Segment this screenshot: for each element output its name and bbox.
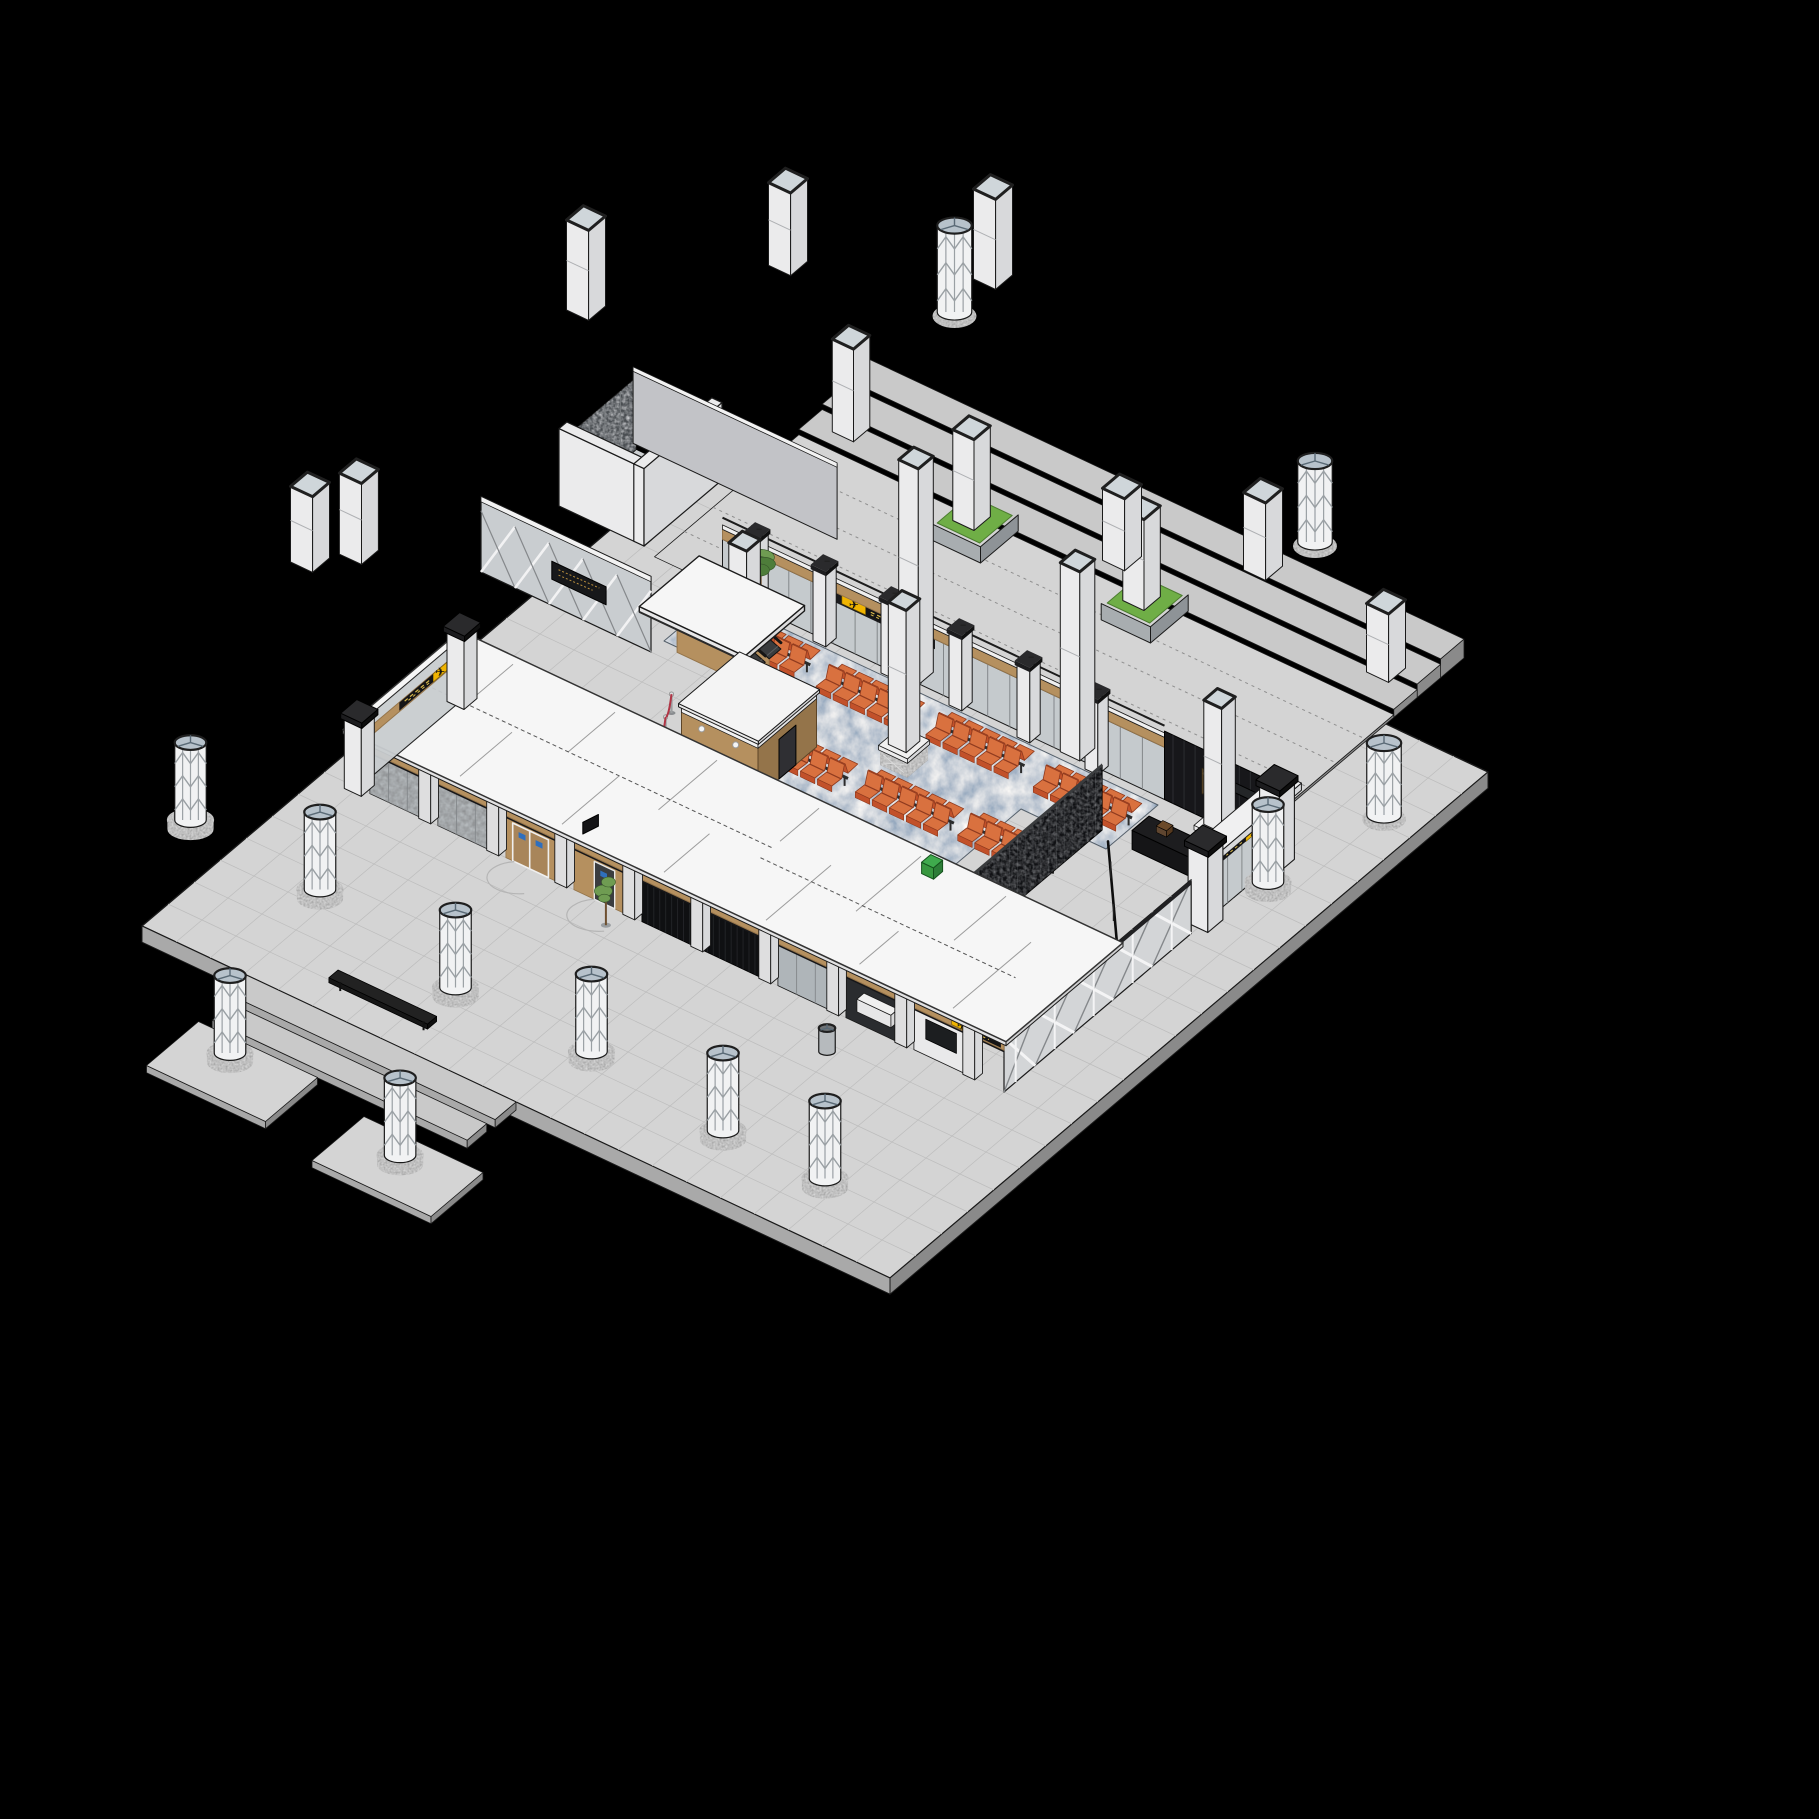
model-viewport: Isometric 3D cutaway rendering of a tran… bbox=[0, 0, 1819, 1819]
floating-lattice-column bbox=[1362, 735, 1406, 831]
cut-column bbox=[1060, 550, 1095, 761]
isometric-station-model: ✈✈✈✈ bbox=[0, 0, 1819, 1819]
floating-square-column bbox=[1103, 474, 1142, 571]
floating-lattice-column bbox=[933, 218, 977, 328]
trash-bin bbox=[819, 1024, 836, 1055]
lattice-column bbox=[168, 735, 213, 839]
floating-square-column bbox=[291, 472, 330, 572]
floating-square-column bbox=[1367, 589, 1406, 682]
floating-lattice-column bbox=[1293, 453, 1337, 558]
lattice-column bbox=[208, 968, 253, 1072]
floating-square-column bbox=[974, 175, 1013, 290]
floating-square-column bbox=[1244, 478, 1283, 580]
lattice-column bbox=[433, 903, 478, 1007]
lattice-column bbox=[378, 1071, 423, 1175]
floating-square-column bbox=[567, 206, 606, 321]
lattice-column bbox=[701, 1046, 746, 1150]
lattice-column bbox=[298, 805, 343, 909]
lattice-column bbox=[1246, 797, 1291, 901]
airplane-icon: ✈ bbox=[435, 665, 445, 679]
lattice-column bbox=[569, 967, 614, 1071]
floating-square-column bbox=[339, 459, 378, 565]
terrace-column bbox=[832, 325, 870, 442]
lattice-column bbox=[803, 1094, 848, 1198]
floating-square-column bbox=[769, 168, 808, 276]
